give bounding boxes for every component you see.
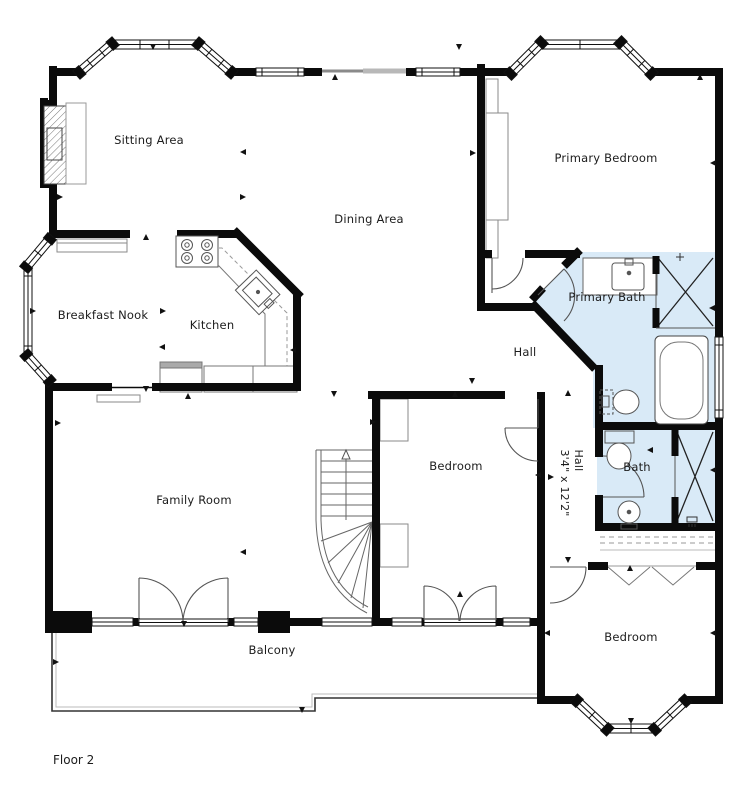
label-hall-dimension: Hall 3'4" x 12'2" [557, 449, 585, 516]
window [392, 618, 422, 626]
bedroom-bottom-door [550, 567, 586, 603]
label-balcony: Balcony [249, 643, 296, 657]
label-bedroom-bottom: Bedroom [604, 630, 657, 644]
floor-plan-drawing [0, 0, 750, 795]
window [234, 618, 258, 626]
bathtub [655, 336, 708, 424]
stove [176, 236, 218, 267]
label-dining-area: Dining Area [334, 212, 403, 226]
label-sitting-area: Sitting Area [114, 133, 184, 147]
bedroom-closet-bottom [380, 524, 408, 567]
window [256, 68, 304, 76]
label-hall: Hall [514, 345, 537, 359]
balcony-outline [52, 633, 539, 711]
label-kitchen: Kitchen [190, 318, 235, 332]
open-railing [322, 69, 406, 74]
floor-title: Floor 2 [53, 753, 94, 767]
primary-bedroom-shelf [486, 79, 498, 113]
label-primary-bedroom: Primary Bedroom [554, 151, 657, 165]
label-family-room: Family Room [156, 493, 232, 507]
furniture [57, 79, 508, 567]
window [322, 618, 372, 626]
hearth [66, 103, 86, 184]
family-room-french-doors [139, 578, 228, 622]
label-bath: Bath [623, 460, 651, 474]
label-primary-bath: Primary Bath [568, 290, 645, 304]
hall-dimension-name: Hall [571, 449, 585, 516]
pass-through-shelf [97, 395, 140, 402]
bedroom-middle-door [505, 399, 538, 461]
primary-bedroom-door [492, 258, 523, 293]
staircase [316, 450, 376, 613]
bedroom-closet-top [380, 399, 408, 441]
window [92, 618, 133, 626]
hall-dimension-size: 3'4" x 12'2" [557, 449, 571, 516]
label-breakfast-nook: Breakfast Nook [58, 308, 149, 322]
primary-bedroom-wardrobe [486, 113, 508, 220]
bath-window [715, 337, 723, 418]
fireplace [44, 103, 86, 184]
label-bedroom-middle: Bedroom [429, 459, 482, 473]
bifold-closet-doors [608, 567, 694, 585]
floor-plan: Sitting Area Dining Area Primary Bedroom… [0, 0, 750, 795]
window [503, 618, 530, 626]
sideboard [57, 239, 127, 252]
closet-details [600, 537, 715, 585]
bay-window-top-primary [538, 40, 622, 49]
kitchen-sink [235, 270, 281, 316]
window [416, 68, 460, 76]
